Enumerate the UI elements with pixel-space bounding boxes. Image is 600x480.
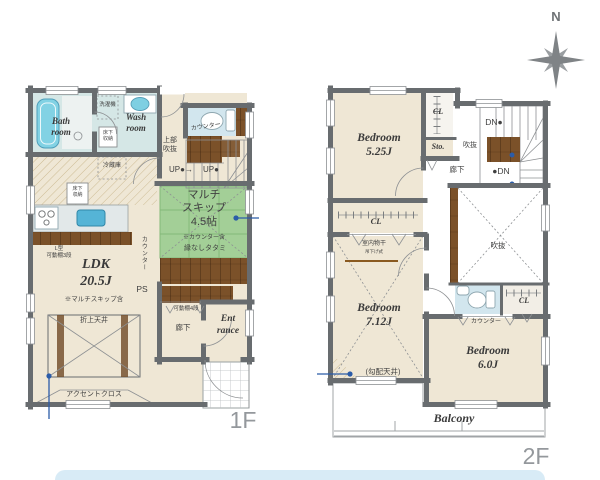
label-up-right: UP●: [200, 165, 222, 175]
toilet2-bowl-icon: [468, 292, 486, 308]
label-shelf4: 可動棚4段: [163, 306, 209, 313]
stair-wood-2: [222, 140, 240, 157]
label-sloped-ceiling: (勾配天井): [354, 367, 412, 376]
label-closet-top: CL: [427, 107, 449, 117]
floor1-label: 1F: [226, 406, 260, 434]
label-ldk: LDK 20.5J: [64, 256, 128, 290]
compass-icon: [527, 31, 585, 89]
label-bedroom1: Bedroom 5.25J: [342, 131, 416, 159]
label-multiskip-note1: ※カウンター含: [172, 235, 236, 242]
void-floor: [453, 188, 543, 283]
label-underfloor-wash: 床下 収納: [99, 130, 117, 142]
label-ldk-note: ※マルチスキップ含: [54, 296, 134, 304]
floor2-label: 2F: [518, 442, 554, 470]
label-coffered-ceiling: 折上天井: [70, 317, 118, 326]
void-wood-edge: [450, 186, 458, 284]
stove-icon: [35, 207, 58, 229]
label-multiskip-note2: 縁なしタタミ: [174, 245, 236, 254]
label-bathroom: Bath room: [42, 116, 80, 138]
label-closet-right: CL: [513, 296, 535, 306]
label-bedroom2: Bedroom 7.12J: [342, 301, 416, 329]
label-closet-mid: CL: [362, 216, 390, 226]
label-up-left: UP●→: [168, 165, 194, 175]
label-multiskip: マルチ スキップ 4.5帖: [168, 189, 240, 229]
label-dn-bottom: ●DN: [486, 166, 516, 176]
label-storage: Sto.: [425, 142, 451, 152]
label-balcony: Balcony: [422, 411, 486, 426]
label-drying-sub: 吊下げ式: [356, 249, 392, 254]
floorplan-canvas: [0, 0, 600, 480]
label-washroom: Wash room: [116, 112, 156, 134]
toilet1-tank-icon: [226, 110, 235, 131]
kitchen-wood-front: [33, 232, 132, 245]
kitchen-floor-hatch: [33, 152, 157, 205]
compass-n-label: N: [546, 9, 566, 25]
label-bedroom3: Bedroom 6.0J: [452, 344, 524, 372]
label-entrance: Ent rance: [208, 314, 248, 337]
bottom-card-edge: [55, 470, 545, 480]
floorplan-page: Bath room Wash room 洗濯機 床下 収納 カウンター 上部 吹…: [0, 0, 600, 480]
label-underfloor-kitchen: 床下 収納: [67, 186, 88, 198]
label-ps: PS: [132, 284, 152, 294]
sink-icon: [77, 210, 105, 226]
toilet2-tank-icon: [486, 291, 495, 308]
label-washer: 洗濯機: [97, 102, 118, 109]
label-dn-top: DN●: [480, 117, 508, 127]
toilet2-sink-icon: [457, 286, 469, 295]
label-void-main: 吹抜: [484, 241, 512, 250]
wood-deck-step: [160, 258, 248, 284]
stair-landing-wood-2f: [487, 137, 520, 162]
label-upper-void: 上部 吹抜: [157, 137, 183, 154]
label-fridge: 冷蔵庫: [97, 163, 127, 170]
label-counter-2f: カウンター: [464, 319, 508, 326]
label-accent-cloth: アクセントクロス: [58, 391, 130, 400]
label-counter-side: カウンター: [139, 236, 146, 271]
label-hallway-1f: 廊下: [168, 323, 198, 332]
wash-basin-icon: [131, 98, 149, 111]
label-void-stair: 吹抜: [458, 142, 482, 151]
label-drying: 室内物干: [354, 241, 394, 248]
label-hallway-2f: 廊下: [444, 165, 470, 174]
